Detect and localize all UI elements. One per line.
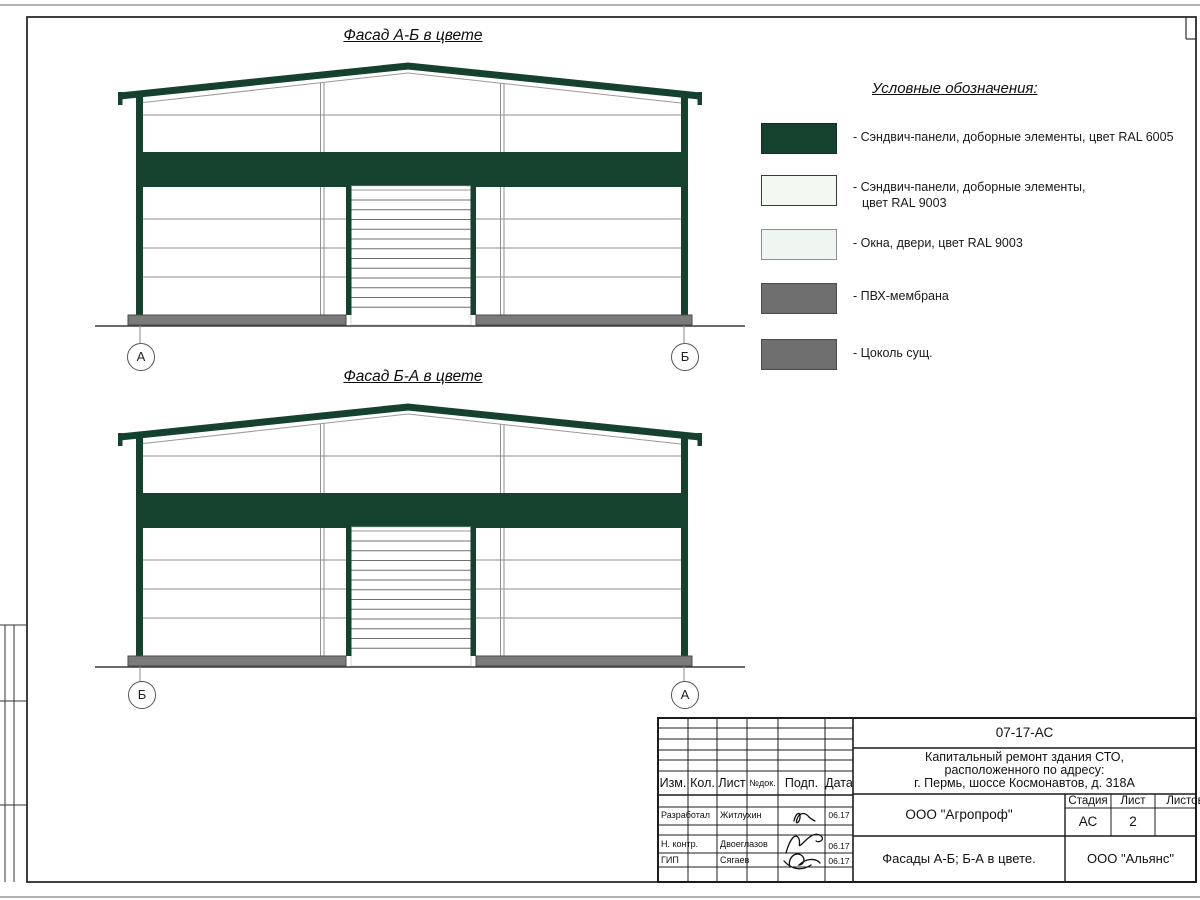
stage-value: АС (1065, 808, 1111, 836)
legend-label-ral9003-line2: цвет RAL 9003 (862, 196, 947, 210)
sheet-number: 2 (1111, 808, 1155, 836)
legend-title: Условные обозначения: (872, 80, 1038, 97)
legend-swatch-ral6005 (761, 123, 837, 154)
legend-swatch-plinth (761, 339, 837, 370)
legend-label-ral6005: - Сэндвич-панели, доборные элементы, цве… (853, 130, 1174, 144)
sig-role-3: ГИП (661, 855, 679, 865)
legend-swatch-ral9003-panels (761, 175, 837, 206)
stage-label: Стадия (1065, 794, 1111, 808)
legend-label-plinth: - Цоколь сущ. (853, 346, 933, 360)
drawing-title: Фасады А-Б; Б-А в цвете. (853, 836, 1065, 882)
sig-name-2: Двоеглазов (720, 839, 768, 849)
sheet-label: Лист (1111, 794, 1155, 808)
col-ndok: №док. (747, 771, 778, 795)
facade-ab-title: Фасад А-Б в цвете (263, 27, 563, 45)
axis-marker-a-right: А (671, 681, 699, 709)
col-izm: Изм. (658, 771, 688, 795)
sig-name-1: Житлухин (720, 810, 762, 820)
axis-marker-a-left: А (127, 343, 155, 371)
company-name: ООО "Альянс" (1065, 836, 1196, 882)
sig-role-2: Н. контр. (661, 839, 698, 849)
org-name: ООО "Агропроф" (853, 796, 1065, 834)
col-data: Дата (825, 771, 853, 795)
col-podp: Подп. (778, 771, 825, 795)
sig-role-1: Разработал (661, 810, 710, 820)
legend-swatch-ral9003-windows (761, 229, 837, 260)
legend-label-pvc: - ПВХ-мембрана (853, 289, 949, 303)
axis-marker-b-left: Б (128, 681, 156, 709)
left-margin-table (0, 625, 27, 882)
legend-swatch-pvc-membrane (761, 283, 837, 314)
facade-elevation (95, 66, 745, 343)
drawing-sheet: { "sheet": { "facades": [ { "title": "Фа… (0, 0, 1200, 900)
facade-elevation (95, 407, 745, 684)
sheets-label: Листов (1155, 794, 1200, 808)
sig-date-1: 06.17 (826, 810, 852, 820)
project-line-3: г. Пермь, шоссе Космонавтов, д. 318А (853, 776, 1196, 790)
sig-name-3: Сягаев (720, 855, 749, 865)
sig-date-2: 06.17 (826, 841, 852, 851)
axis-marker-b-right: Б (671, 343, 699, 371)
facade-ba-title: Фасад Б-А в цвете (263, 368, 563, 386)
col-kol: Кол. (688, 771, 717, 795)
doc-code: 07-17-АС (853, 720, 1196, 746)
sig-date-3: 06.17 (826, 856, 852, 866)
legend-label-ral9003-line1: - Сэндвич-панели, доборные элементы, (853, 180, 1086, 194)
project-line-1: Капитальный ремонт здания СТО, (853, 750, 1196, 764)
col-list: Лист (717, 771, 747, 795)
project-line-2: расположенного по адресу: (853, 763, 1196, 777)
signature-strokes (784, 813, 822, 868)
legend-label-windows: - Окна, двери, цвет RAL 9003 (853, 236, 1023, 250)
